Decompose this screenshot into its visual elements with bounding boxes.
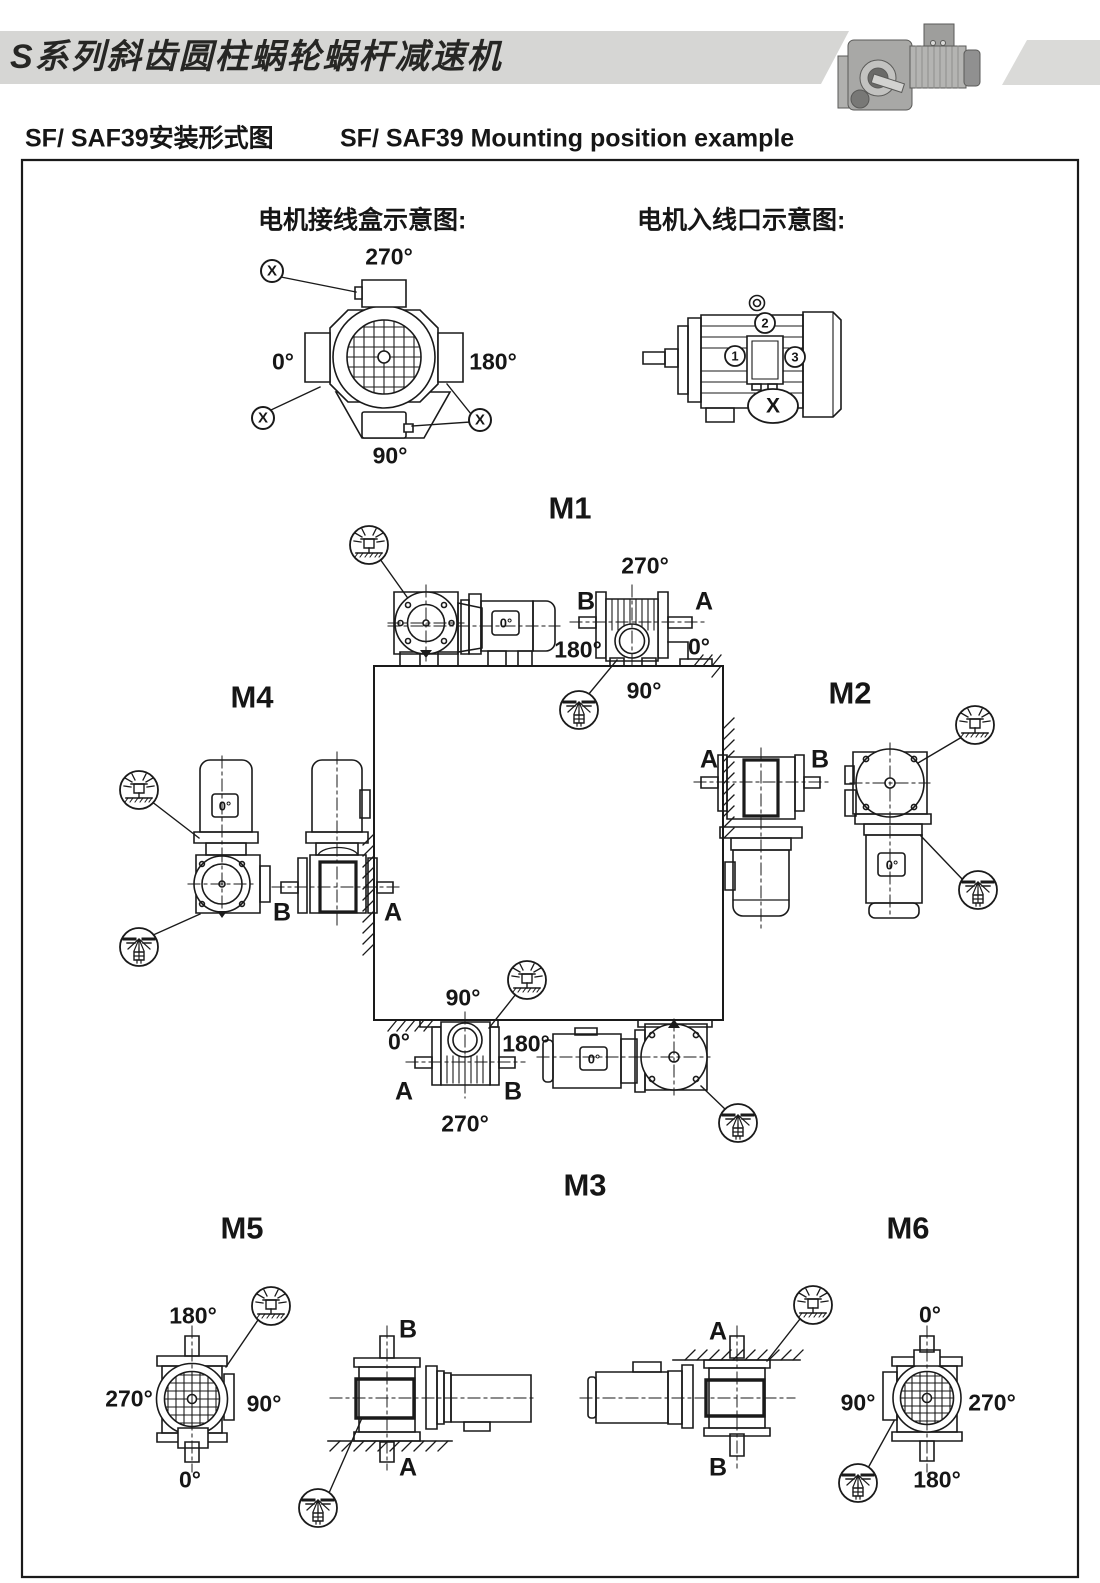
m6-shaft-b: B — [709, 1456, 727, 1481]
wall-hatching — [363, 655, 734, 1031]
m2-motor-angle: 0° — [886, 859, 898, 872]
junction-marker-x: X — [258, 411, 268, 426]
m1-motor-angle: 0° — [500, 617, 512, 630]
m6-angle-bottom: 180° — [913, 1469, 961, 1492]
m3-angle-left: 0° — [388, 1031, 410, 1054]
cable-entry-marker-x: X — [766, 396, 780, 417]
catalog-page: S系列斜齿圆柱蜗轮蜗杆减速机 SF/ SAF39安装形式图 SF/ SAF39 … — [0, 0, 1100, 1583]
cable-entry-pos-3: 3 — [791, 351, 798, 364]
m2-shaft-a: A — [700, 748, 718, 773]
m4-front-view — [188, 756, 270, 918]
junction-angle-left: 0° — [272, 351, 294, 374]
m1-shaft-a: A — [695, 590, 713, 615]
m3-angle-bottom: 270° — [441, 1113, 489, 1136]
junction-marker-x: X — [475, 413, 485, 428]
m3-shaft-b: B — [504, 1080, 522, 1105]
m5-side-view — [328, 1326, 535, 1470]
m3-side-view — [537, 1019, 712, 1095]
m4-shaft-b: B — [273, 901, 291, 926]
m4-symbol-leaders — [120, 771, 200, 966]
m4-motor-angle: 0° — [219, 800, 231, 813]
m2-symbol-leaders — [918, 706, 997, 909]
subtitle-en: SF/ SAF39 Mounting position example — [340, 127, 794, 152]
m4-label: M4 — [230, 682, 273, 713]
m3-label: M3 — [563, 1170, 606, 1201]
page-title: S系列斜齿圆柱蜗轮蜗杆减速机 — [10, 40, 503, 74]
m2-shaft-b: B — [811, 748, 829, 773]
junction-angle-top: 270° — [365, 246, 413, 269]
m3-angle-right: 180° — [502, 1033, 550, 1056]
m6-side-view — [580, 1326, 803, 1468]
cable-entry-legend-drawing — [643, 296, 841, 424]
m1-shaft-b: B — [577, 590, 595, 615]
diagram-artwork — [0, 0, 1100, 1583]
m6-label: M6 — [886, 1213, 929, 1244]
m5-angle-top: 180° — [169, 1305, 217, 1328]
m1-angle-top: 270° — [621, 555, 669, 578]
m5-angle-bottom: 0° — [179, 1469, 201, 1492]
cable-entry-pos-1: 1 — [731, 350, 738, 363]
m2-label: M2 — [828, 678, 871, 709]
cable-entry-legend-title: 电机入线口示意图: — [637, 209, 845, 234]
m3-angle-top: 90° — [446, 987, 481, 1010]
junction-marker-x: X — [267, 264, 277, 279]
m6-fan-view — [883, 1326, 962, 1472]
m5-shaft-a: A — [399, 1456, 417, 1481]
gearbox-outline-box — [374, 666, 723, 1020]
m5-shaft-b: B — [399, 1318, 417, 1343]
m5-angle-left: 270° — [105, 1388, 153, 1411]
m6-angle-top: 0° — [919, 1304, 941, 1327]
m1-symbol-leaders — [350, 526, 617, 729]
m6-angle-left: 90° — [841, 1392, 876, 1415]
junction-angle-bottom: 90° — [373, 445, 408, 468]
m6-shaft-a: A — [709, 1320, 727, 1345]
junction-box-legend-title: 电机接线盒示意图: — [258, 209, 466, 234]
m5-fan-view — [157, 1326, 235, 1472]
junction-angle-right: 180° — [469, 351, 517, 374]
m1-label: M1 — [548, 493, 591, 524]
m3-shaft-a: A — [395, 1080, 413, 1105]
m6-angle-right: 270° — [968, 1392, 1016, 1415]
m1-front-view — [388, 585, 560, 666]
m4-shaft-a: A — [384, 901, 402, 926]
m4-side-view — [272, 752, 402, 925]
m5-angle-right: 90° — [247, 1393, 282, 1416]
m3-motor-angle: 0° — [588, 1053, 600, 1066]
subtitle-zh: SF/ SAF39安装形式图 — [25, 127, 274, 152]
m1-angle-right: 0° — [688, 636, 710, 659]
gearmotor-product-image — [838, 24, 980, 110]
m1-angle-left: 180° — [554, 639, 602, 662]
m2-front-view — [845, 743, 931, 918]
m1-angle-bottom: 90° — [627, 680, 662, 703]
m2-side-view — [694, 748, 830, 928]
m5-label: M5 — [220, 1213, 263, 1244]
cable-entry-pos-2: 2 — [761, 317, 768, 330]
